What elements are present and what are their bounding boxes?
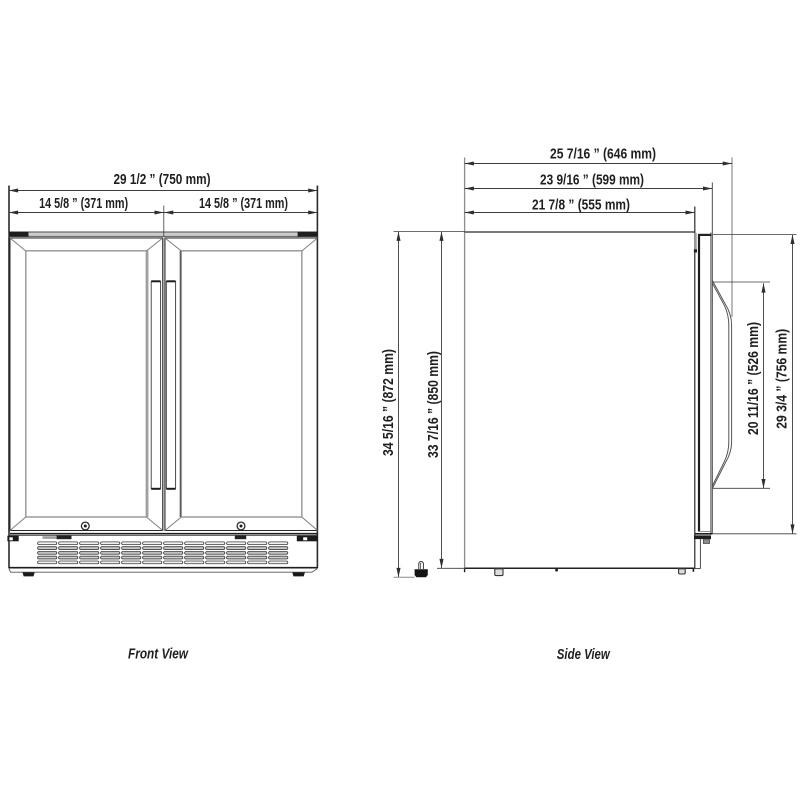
svg-text:25 7/16 ” (646 mm): 25 7/16 ” (646 mm) — [550, 146, 656, 163]
svg-text:23 9/16 ” (599 mm): 23 9/16 ” (599 mm) — [540, 171, 644, 188]
svg-text:21 7/8 ” (555 mm): 21 7/8 ” (555 mm) — [532, 197, 630, 214]
svg-text:Side View: Side View — [557, 647, 611, 663]
svg-text:29 3/4 ” (756 mm): 29 3/4 ” (756 mm) — [773, 329, 790, 429]
svg-text:14 5/8 ” (371 mm): 14 5/8 ” (371 mm) — [199, 195, 288, 212]
svg-text:14 5/8 ” (371 mm): 14 5/8 ” (371 mm) — [39, 195, 128, 212]
svg-text:33 7/16 ” (850 mm): 33 7/16 ” (850 mm) — [425, 351, 442, 458]
svg-text:34 5/16 ” (872 mm): 34 5/16 ” (872 mm) — [380, 349, 397, 456]
svg-text:Front View: Front View — [128, 647, 189, 663]
svg-text:29 1/2 ” (750 mm): 29 1/2 ” (750 mm) — [114, 171, 211, 188]
svg-text:20 11/16 ” (526 mm): 20 11/16 ” (526 mm) — [745, 322, 762, 435]
